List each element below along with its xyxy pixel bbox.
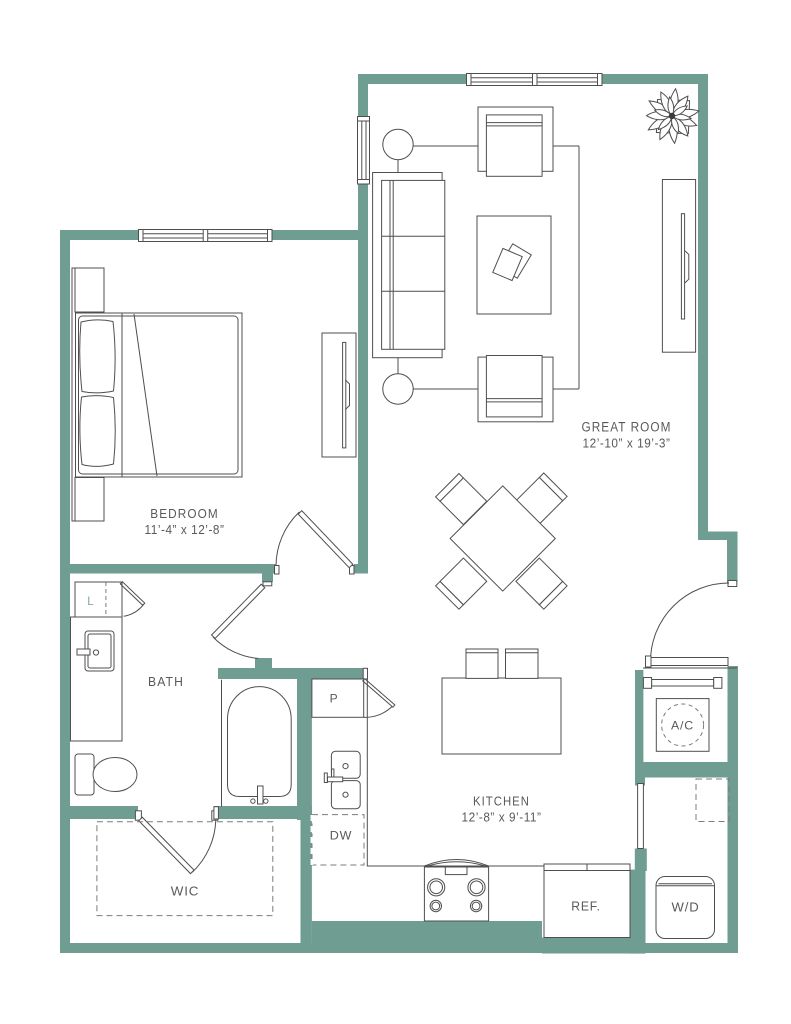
svg-text:BEDROOM: BEDROOM — [150, 506, 219, 521]
svg-text:P: P — [330, 692, 339, 706]
svg-text:11’-4” x 12’-8”: 11’-4” x 12’-8” — [145, 522, 225, 537]
svg-text:A/C: A/C — [671, 719, 694, 733]
svg-text:W/D: W/D — [672, 901, 700, 915]
svg-text:DW: DW — [330, 829, 353, 843]
svg-text:WIC: WIC — [171, 885, 200, 899]
svg-text:L: L — [87, 596, 94, 608]
svg-text:REF.: REF. — [571, 900, 601, 914]
svg-text:KITCHEN: KITCHEN — [473, 794, 530, 809]
svg-text:12’-8” x 9’-11”: 12’-8” x 9’-11” — [462, 810, 542, 825]
svg-text:BATH: BATH — [148, 674, 184, 689]
svg-text:12’-10” x 19’-3”: 12’-10” x 19’-3” — [583, 436, 671, 451]
svg-text:GREAT ROOM: GREAT ROOM — [582, 420, 672, 435]
